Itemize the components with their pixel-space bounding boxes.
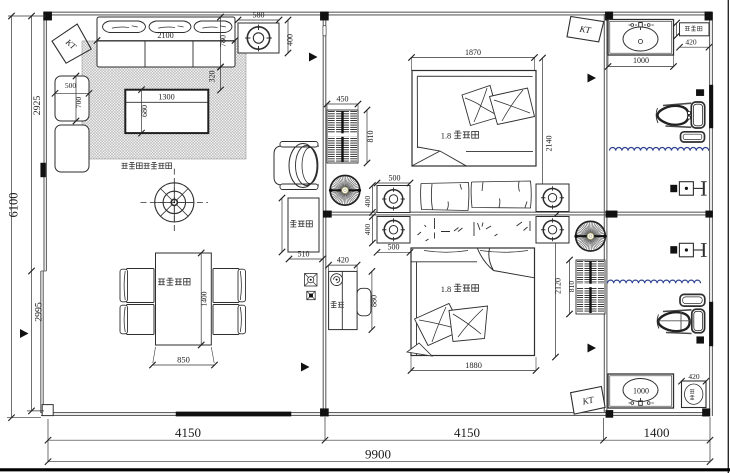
svg-text:810: 810 xyxy=(366,131,375,143)
svg-text:400: 400 xyxy=(363,196,372,208)
svg-text:1.8: 1.8 xyxy=(441,132,451,141)
svg-text:2995: 2995 xyxy=(34,302,45,322)
svg-text:500: 500 xyxy=(65,81,77,90)
svg-text:420: 420 xyxy=(337,256,349,265)
svg-text:2925: 2925 xyxy=(32,96,43,116)
svg-text:500: 500 xyxy=(388,243,400,252)
svg-text:1000: 1000 xyxy=(633,56,649,65)
svg-text:1000: 1000 xyxy=(633,386,649,395)
svg-text:850: 850 xyxy=(177,355,190,365)
svg-text:1870: 1870 xyxy=(465,48,481,57)
svg-text:2120: 2120 xyxy=(553,278,562,294)
svg-text:2100: 2100 xyxy=(157,31,173,40)
svg-text:6100: 6100 xyxy=(7,193,21,218)
svg-text:420: 420 xyxy=(688,372,700,381)
svg-text:4150: 4150 xyxy=(454,425,480,440)
svg-text:580: 580 xyxy=(253,11,265,20)
svg-text:1880: 1880 xyxy=(465,361,482,370)
svg-text:2140: 2140 xyxy=(545,136,554,152)
svg-text:450: 450 xyxy=(337,95,349,104)
svg-text:1400: 1400 xyxy=(644,425,670,440)
svg-text:1400: 1400 xyxy=(199,291,208,306)
svg-text:1300: 1300 xyxy=(158,93,174,102)
svg-text:510: 510 xyxy=(298,250,310,259)
svg-text:880: 880 xyxy=(370,295,379,307)
svg-text:700: 700 xyxy=(74,97,83,109)
svg-text:420: 420 xyxy=(685,38,697,47)
svg-text:4150: 4150 xyxy=(175,425,201,440)
svg-text:500: 500 xyxy=(389,173,401,182)
svg-text:680: 680 xyxy=(140,105,149,117)
svg-text:780: 780 xyxy=(219,35,228,47)
svg-text:400: 400 xyxy=(286,34,295,46)
svg-text:400: 400 xyxy=(363,224,372,236)
svg-text:1.8: 1.8 xyxy=(441,285,451,294)
svg-text:810: 810 xyxy=(567,281,576,293)
svg-text:9900: 9900 xyxy=(365,447,391,462)
svg-text:320: 320 xyxy=(208,71,217,83)
